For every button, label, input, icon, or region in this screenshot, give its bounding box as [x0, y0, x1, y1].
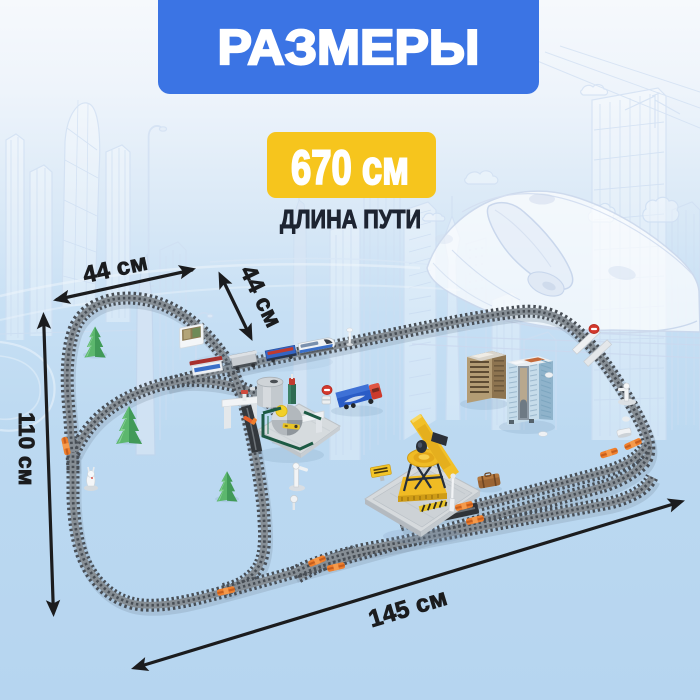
svg-text:670 см: 670 см — [291, 142, 409, 195]
svg-text:ДЛИНА ПУТИ: ДЛИНА ПУТИ — [280, 204, 421, 234]
svg-text:110 см: 110 см — [14, 412, 39, 486]
svg-text:РАЗМЕРЫ: РАЗМЕРЫ — [218, 21, 480, 75]
